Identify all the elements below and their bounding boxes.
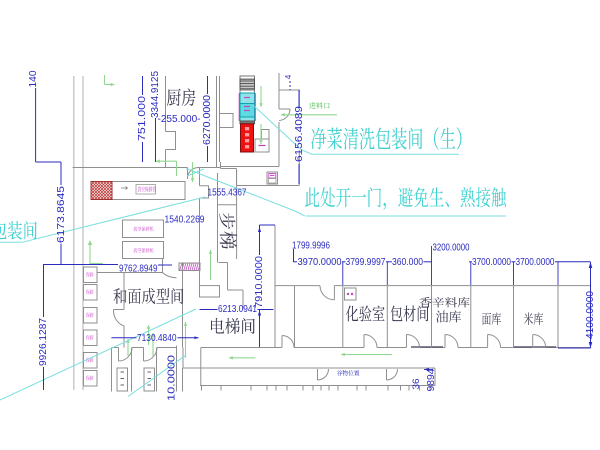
svg-text:9926.1287: 9926.1287	[38, 318, 49, 366]
svg-text:1540.2269: 1540.2269	[165, 215, 205, 226]
svg-text:6270.0000: 6270.0000	[202, 95, 213, 145]
svg-text:3700.0000: 3700.0000	[516, 257, 555, 268]
svg-text:3700.0000: 3700.0000	[472, 257, 511, 268]
svg-text:3970.0000: 3970.0000	[298, 257, 342, 268]
svg-text:10.0000: 10.0000	[167, 354, 178, 401]
svg-text:360.000: 360.000	[392, 257, 423, 268]
svg-text:3200.0000: 3200.0000	[433, 243, 470, 254]
svg-text:6156.4089: 6156.4089	[294, 105, 305, 162]
svg-text:4100.0000: 4100.0000	[585, 291, 596, 339]
svg-text:1555.4367: 1555.4367	[208, 188, 247, 199]
svg-text:7910.0000: 7910.0000	[254, 256, 265, 308]
svg-text:9762.8949: 9762.8949	[119, 264, 158, 275]
svg-text:751.000: 751.000	[137, 95, 148, 141]
svg-text:4: 4	[283, 74, 293, 79]
svg-text:6213.0941: 6213.0941	[218, 304, 257, 315]
svg-text:9894: 9894	[426, 368, 437, 391]
svg-text:140: 140	[28, 70, 39, 87]
svg-text:-255.000-: -255.000-	[158, 114, 201, 125]
svg-text:3344.9125: 3344.9125	[150, 71, 161, 118]
svg-text:3799.9997: 3799.9997	[346, 257, 386, 268]
svg-text:36: 36	[411, 378, 421, 389]
svg-text:1799.9996: 1799.9996	[292, 241, 330, 252]
svg-text:7130.4840: 7130.4840	[137, 333, 177, 344]
svg-text:6173.8645: 6173.8645	[56, 185, 67, 243]
